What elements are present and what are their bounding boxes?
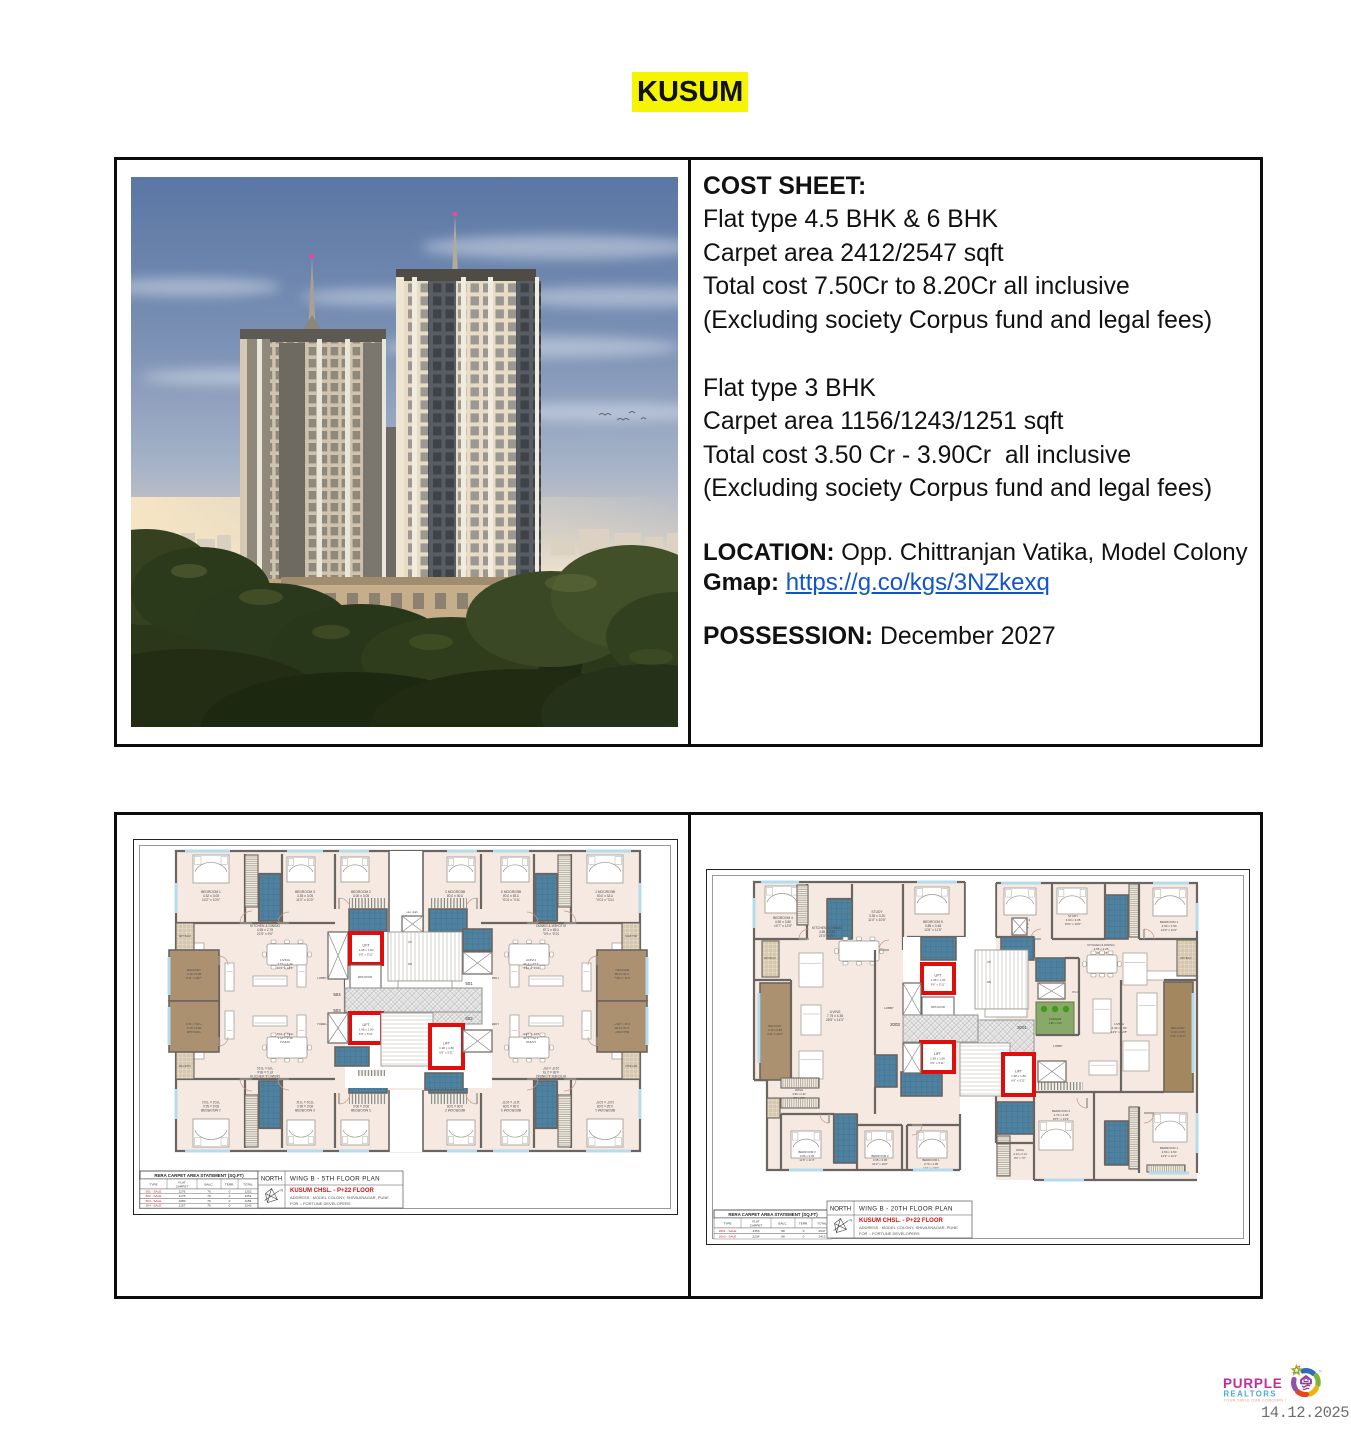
svg-text:MRS ROOM: MRS ROOM: [358, 976, 372, 979]
svg-text:MRS ROOM: MRS ROOM: [931, 1006, 945, 1009]
svg-text:76: 76: [207, 1199, 211, 1203]
svg-text:DRY BALC: DRY BALC: [625, 1064, 638, 1067]
svg-text:REALTORS: REALTORS: [1224, 1390, 1277, 1399]
svg-text:9'10" x 10'0": 9'10" x 10'0": [1065, 922, 1081, 926]
svg-text:11'0" x 10'0": 11'0" x 10'0": [296, 1100, 315, 1104]
svg-text:76: 76: [207, 1189, 211, 1193]
svg-text:25'5" x 14'3": 25'5" x 14'3": [826, 1018, 845, 1022]
svg-text:14'9" x 22'8": 14'9" x 22'8": [1111, 1030, 1127, 1034]
svg-text:LIFT: LIFT: [934, 1052, 941, 1056]
svg-text:21'5" x 9'0": 21'5" x 9'0": [542, 932, 559, 936]
svg-text:12'2" x 10'8": 12'2" x 10'8": [523, 966, 540, 970]
svg-text:14'2" x 10'0": 14'2" x 10'0": [595, 1100, 614, 1104]
svg-text:502 - SALE: 502 - SALE: [146, 1194, 162, 1198]
svg-text:LIFT: LIFT: [363, 944, 370, 948]
svg-text:6'11" x 21'6": 6'11" x 21'6": [1170, 1034, 1185, 1038]
svg-text:FOR :- FORTUNE DEVELOPERS: FOR :- FORTUNE DEVELOPERS: [859, 1231, 920, 1236]
svg-text:TOTAL: TOTAL: [817, 1222, 827, 1226]
svg-text:DRY BALC: DRY BALC: [179, 935, 192, 938]
svg-text:6'6" x 5'11": 6'6" x 5'11": [931, 983, 946, 987]
svg-text:UP: UP: [408, 940, 412, 944]
svg-text:WING B - 5TH FLOOR PLAN: WING B - 5TH FLOOR PLAN: [290, 1176, 380, 1183]
svg-text:TYPE: TYPE: [723, 1222, 731, 1226]
svg-text:2.44 x 2.14: 2.44 x 2.14: [1013, 1152, 1027, 1156]
svg-text:KUSUM CHSL. - P+22 FLOOR: KUSUM CHSL. - P+22 FLOOR: [859, 1218, 944, 1224]
svg-text:KUSUM CHSL. - P+22 FLOOR: KUSUM CHSL. - P+22 FLOOR: [290, 1188, 375, 1194]
svg-text:21'5" x 9'0": 21'5" x 9'0": [542, 1066, 559, 1070]
svg-text:LOBBY: LOBBY: [1053, 1044, 1063, 1048]
svg-text:6'11" x 22'4": 6'11" x 22'4": [767, 1032, 782, 1036]
svg-text:12'2" x 10'8": 12'2" x 10'8": [523, 1032, 540, 1036]
svg-text:1243: 1243: [245, 1204, 252, 1208]
svg-text:14'9" x 12'1": 14'9" x 12'1": [1161, 1154, 1177, 1158]
svg-text:1175: 1175: [179, 1194, 186, 1198]
svg-text:6'6" x 5'11": 6'6" x 5'11": [930, 1061, 945, 1065]
svg-text:2001: 2001: [1017, 1025, 1027, 1030]
svg-text:ADDRESS : MODEL COLONY, SHIVAJ: ADDRESS : MODEL COLONY, SHIVAJINAGAR, PU…: [290, 1195, 389, 1200]
svg-text:1252: 1252: [245, 1189, 252, 1193]
svg-text:0: 0: [803, 1235, 805, 1239]
svg-text:DRY BALC: DRY BALC: [764, 957, 776, 960]
svg-text:TERR.: TERR.: [799, 1222, 808, 1226]
svg-text:ADDRESS : MODEL COLONY, SHIVAJ: ADDRESS : MODEL COLONY, SHIVAJINAGAR, PU…: [859, 1225, 958, 1230]
svg-text:NORTH: NORTH: [261, 1177, 282, 1183]
svg-text:12'6" x 11'5": 12'6" x 11'5": [924, 928, 943, 932]
svg-text:0: 0: [803, 1229, 805, 1233]
svg-text:501 - SALE: 501 - SALE: [146, 1189, 162, 1193]
svg-text:DRY BALC: DRY BALC: [1180, 957, 1192, 960]
svg-text:6'11" x 16'7": 6'11" x 16'7": [614, 976, 630, 980]
svg-text:NORTH: NORTH: [830, 1207, 851, 1213]
svg-text:YOUR SMILE OUR CONCERN !: YOUR SMILE OUR CONCERN !: [1224, 1399, 1286, 1403]
svg-text:TERR.: TERR.: [225, 1183, 234, 1187]
svg-text:TOTAL: TOTAL: [243, 1183, 253, 1187]
svg-text:2003 - SALE: 2003 - SALE: [719, 1235, 737, 1239]
svg-text:11'6" x 11'3": 11'6" x 11'3": [799, 1158, 814, 1162]
svg-text:2353: 2353: [753, 1229, 760, 1233]
svg-text:98: 98: [781, 1229, 785, 1233]
svg-text:11'0" x 10'5": 11'0" x 10'5": [868, 918, 887, 922]
svg-text:1080: 1080: [179, 1199, 186, 1203]
svg-text:LIFT: LIFT: [1015, 1070, 1022, 1074]
svg-text:11'0" x 10'0": 11'0" x 10'0": [501, 898, 520, 902]
svg-text:2412: 2412: [819, 1235, 826, 1239]
svg-text:6'11" x 16'7": 6'11" x 16'7": [614, 1022, 630, 1026]
svg-text:CARPET: CARPET: [176, 1185, 189, 1189]
svg-text:AANGAN: AANGAN: [1049, 1017, 1061, 1021]
svg-text:1.98 x 1.80: 1.98 x 1.80: [931, 978, 946, 982]
svg-text:elec. shaft: elec. shaft: [407, 911, 418, 914]
svg-text:LIFT: LIFT: [935, 974, 942, 978]
svg-text:WASH: WASH: [795, 1088, 803, 1092]
svg-text:503: 503: [333, 1008, 341, 1013]
svg-text:TYPE: TYPE: [149, 1183, 157, 1187]
svg-text:15'5" x 13'3": 15'5" x 13'3": [1053, 1117, 1069, 1121]
svg-text:12'2" x 10'8": 12'2" x 10'8": [277, 1032, 294, 1036]
svg-text:11'0" x 10'0": 11'0" x 10'0": [501, 1100, 520, 1104]
svg-text:BALC.: BALC.: [205, 1183, 214, 1187]
svg-text:RERA CARPET AREA STATEMENT (SQ: RERA CARPET AREA STATEMENT (SQ.FT): [154, 1173, 244, 1178]
svg-text:1251: 1251: [245, 1194, 252, 1198]
svg-text:1176: 1176: [179, 1189, 186, 1193]
svg-text:2547: 2547: [819, 1229, 826, 1233]
svg-text:UP: UP: [987, 960, 991, 964]
svg-text:0: 0: [229, 1189, 231, 1193]
svg-text:LIFT: LIFT: [363, 1023, 370, 1027]
svg-text:7'7" x 7'7": 7'7" x 7'7": [793, 1096, 805, 1100]
svg-text:14'7" x 12'5": 14'7" x 12'5": [774, 924, 793, 928]
svg-text:6'11" x 16'7": 6'11" x 16'7": [186, 1022, 202, 1026]
svg-text:WASH: WASH: [1016, 1148, 1024, 1152]
svg-text:DRY BALC: DRY BALC: [625, 935, 638, 938]
svg-text:76: 76: [207, 1194, 211, 1198]
svg-text:1.98 x 1.80: 1.98 x 1.80: [930, 1057, 945, 1061]
svg-text:6'11" x 16'7": 6'11" x 16'7": [186, 976, 202, 980]
svg-text:WING B - 20TH FLOOR PLAN: WING B - 20TH FLOOR PLAN: [859, 1206, 953, 1213]
svg-text:501: 501: [465, 981, 473, 986]
svg-text:DN: DN: [408, 962, 412, 966]
svg-text:1.98 x 1.80: 1.98 x 1.80: [359, 948, 374, 952]
svg-text:0: 0: [229, 1199, 231, 1203]
svg-text:LIFT: LIFT: [443, 1042, 450, 1046]
svg-text:2001 - SALE: 2001 - SALE: [719, 1229, 737, 1233]
svg-text:6'6" x 5'11": 6'6" x 5'11": [359, 1032, 374, 1036]
svg-text:21'5" x 9'0": 21'5" x 9'0": [819, 934, 836, 938]
svg-text:503 - SALE: 503 - SALE: [146, 1199, 162, 1203]
svg-text:FOR :- FORTUNE DEVELOPERS: FOR :- FORTUNE DEVELOPERS: [290, 1201, 351, 1206]
svg-text:DRY BALC: DRY BALC: [179, 1064, 192, 1067]
svg-text:504 - SALE: 504 - SALE: [146, 1204, 162, 1208]
svg-text:11'0" x 10'0": 11'0" x 10'0": [296, 898, 315, 902]
svg-text:BALC.: BALC.: [779, 1222, 788, 1226]
svg-text:1.98 x 1.80: 1.98 x 1.80: [1011, 1074, 1026, 1078]
svg-text:CARPET: CARPET: [750, 1224, 763, 1228]
svg-text:504: 504: [333, 992, 341, 997]
svg-text:0: 0: [229, 1204, 231, 1208]
svg-text:98: 98: [781, 1235, 785, 1239]
svg-text:14'2" x 10'0": 14'2" x 10'0": [202, 898, 221, 902]
svg-text:10'2" x 10'0": 10'2" x 10'0": [872, 1162, 888, 1166]
svg-text:RERA CARPET AREA STATEMENT (SQ: RERA CARPET AREA STATEMENT (SQ.FT): [728, 1212, 818, 1217]
svg-text:14'2" x 10'0": 14'2" x 10'0": [202, 1100, 221, 1104]
svg-text:1.80 x 1.23: 1.80 x 1.23: [1049, 1021, 1062, 1025]
svg-text:TM: TM: [1319, 1370, 1323, 1374]
svg-text:14'9" x 11'6": 14'9" x 11'6": [1161, 928, 1177, 932]
svg-text:LOBBY: LOBBY: [884, 1006, 894, 1010]
svg-text:LOBBY: LOBBY: [317, 1022, 327, 1026]
svg-text:76: 76: [207, 1204, 211, 1208]
svg-text:DN: DN: [987, 980, 991, 984]
svg-text:502: 502: [465, 1016, 473, 1021]
svg-text:21'5" x 9'0": 21'5" x 9'0": [257, 932, 274, 936]
svg-text:2234: 2234: [753, 1235, 760, 1239]
svg-text:0: 0: [229, 1194, 231, 1198]
svg-text:14'2" x 10'0": 14'2" x 10'0": [595, 898, 614, 902]
svg-text:8'0" x 7'0": 8'0" x 7'0": [1014, 1156, 1026, 1160]
svg-text:2003: 2003: [890, 1022, 900, 1027]
svg-text:6'6" x 5'11": 6'6" x 5'11": [1011, 1079, 1026, 1083]
svg-text:1.98 x 1.80: 1.98 x 1.80: [439, 1046, 454, 1050]
svg-text:LOBBY: LOBBY: [317, 976, 327, 980]
svg-text:12'2" x 10'8": 12'2" x 10'8": [277, 966, 294, 970]
svg-text:3.96 x 2.32: 3.96 x 2.32: [792, 1092, 806, 1096]
svg-text:1156: 1156: [245, 1199, 252, 1203]
svg-text:1.98 x 1.80: 1.98 x 1.80: [359, 1028, 374, 1032]
svg-text:6'6" x 5'11": 6'6" x 5'11": [439, 1051, 454, 1055]
svg-text:21'5" x 9'0": 21'5" x 9'0": [257, 1066, 274, 1070]
svg-text:1167: 1167: [179, 1204, 186, 1208]
svg-text:6'6" x 5'11": 6'6" x 5'11": [359, 953, 374, 957]
